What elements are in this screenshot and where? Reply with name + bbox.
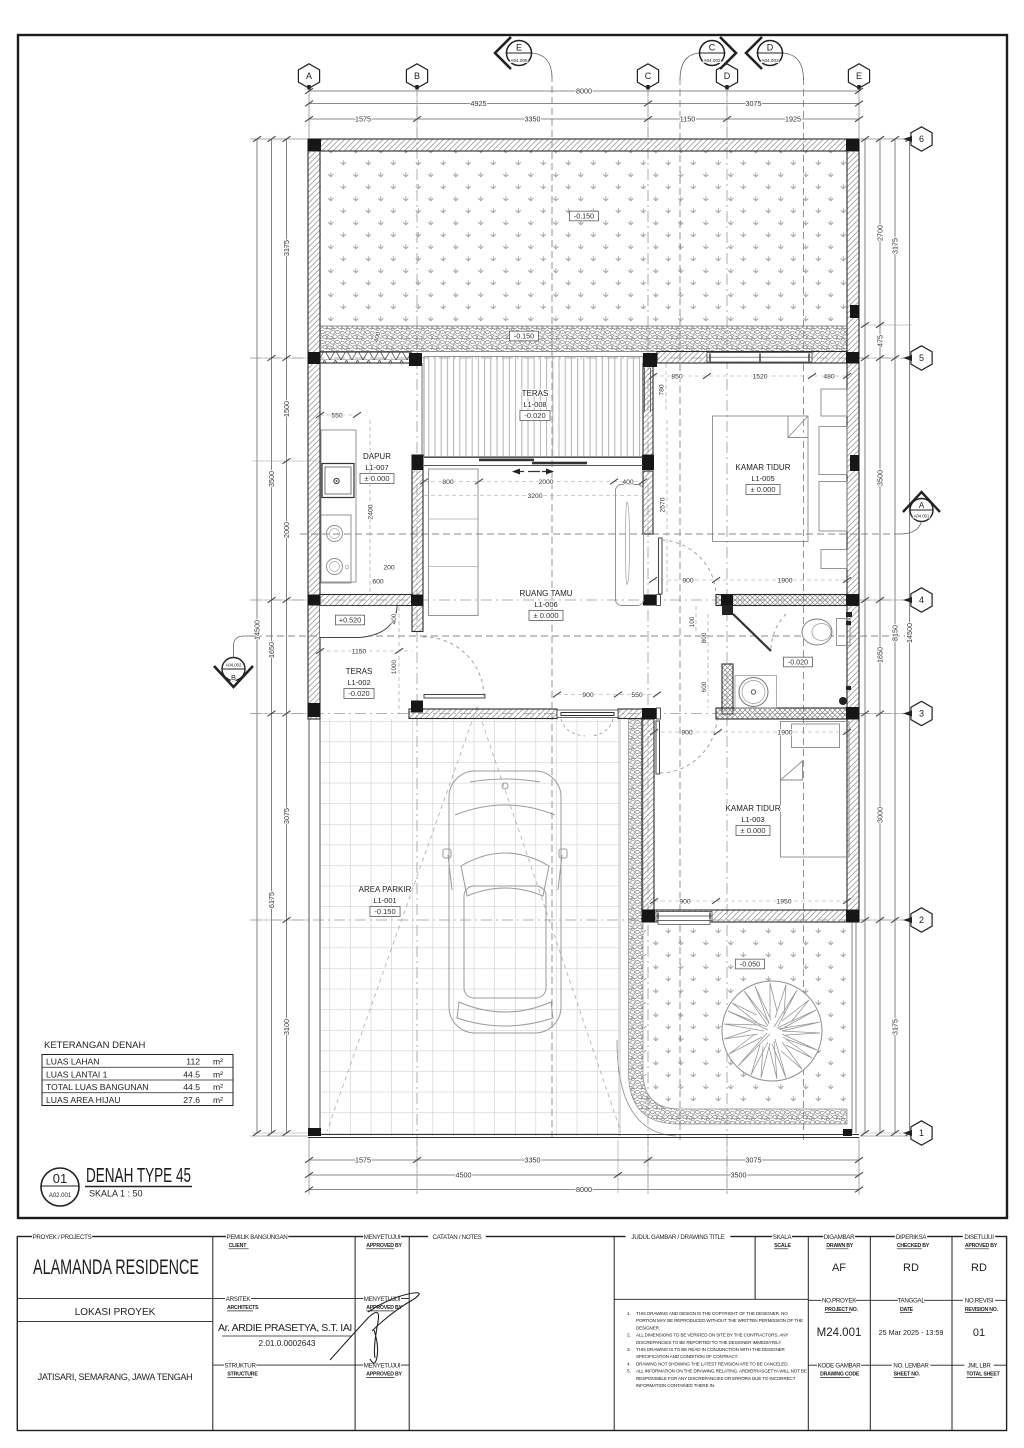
svg-text:SHEET NO.: SHEET NO. xyxy=(894,1372,921,1378)
svg-text:8000: 8000 xyxy=(576,1185,592,1194)
svg-text:480: 480 xyxy=(823,373,835,380)
svg-text:PORTION MAY BE REPRODUCED WITH: PORTION MAY BE REPRODUCED WITHOUT THE WR… xyxy=(636,1318,803,1323)
svg-text:DAPUR: DAPUR xyxy=(363,452,391,461)
svg-text:PEMILIK BANGUNGAN: PEMILIK BANGUNGAN xyxy=(227,1234,288,1241)
svg-text:1150: 1150 xyxy=(352,648,367,655)
svg-text:JUDUL GAMBAR / DRAWING TIT: JUDUL GAMBAR / DRAWING TITLE xyxy=(631,1234,724,1241)
svg-text:C: C xyxy=(645,71,652,81)
svg-text:-0.150: -0.150 xyxy=(574,212,594,221)
svg-text:CHECKED BY: CHECKED BY xyxy=(897,1243,930,1249)
svg-text:KETERANGAN DENAH: KETERANGAN DENAH xyxy=(44,1040,145,1051)
svg-text:SKALA 1 : 50: SKALA 1 : 50 xyxy=(89,1189,143,1199)
svg-text:± 0.000: ± 0.000 xyxy=(751,485,776,494)
svg-text:DENAH TYPE 45: DENAH TYPE 45 xyxy=(86,1165,191,1187)
svg-text:600: 600 xyxy=(701,681,708,692)
svg-text:L1-005: L1-005 xyxy=(751,474,774,483)
svg-text:3000: 3000 xyxy=(876,807,885,823)
svg-text:600: 600 xyxy=(372,578,384,585)
svg-text:PROYEK / PROJECTS: PROYEK / PROJECTS xyxy=(33,1234,92,1241)
svg-text:MENYETUJUI: MENYETUJUI xyxy=(364,1234,401,1241)
svg-text:100: 100 xyxy=(689,616,696,627)
svg-text:2400: 2400 xyxy=(367,504,374,519)
svg-text:A02.001: A02.001 xyxy=(49,1193,72,1199)
svg-text:14500: 14500 xyxy=(253,620,262,640)
svg-text:A04.001: A04.001 xyxy=(914,514,930,519)
svg-text:3075: 3075 xyxy=(282,808,291,824)
svg-text:DESIGNER.: DESIGNER. xyxy=(636,1325,660,1330)
svg-text:1: 1 xyxy=(919,1128,924,1138)
svg-text:3: 3 xyxy=(919,709,924,719)
svg-text:8000: 8000 xyxy=(576,87,592,96)
svg-text:ALAMANDA RESIDENCE: ALAMANDA RESIDENCE xyxy=(33,1256,199,1279)
svg-text:3500: 3500 xyxy=(731,1171,747,1180)
svg-text:4.: 4. xyxy=(627,1361,631,1367)
svg-text:3075: 3075 xyxy=(746,1156,762,1165)
svg-text:01: 01 xyxy=(53,1171,67,1186)
svg-text:TOTAL LUAS BANGUNAN: TOTAL LUAS BANGUNAN xyxy=(46,1082,149,1092)
svg-text:RESPONSIBLE FOR ANY DISCREPANC: RESPONSIBLE FOR ANY DISCREPANCIES OR ERR… xyxy=(636,1376,796,1381)
svg-text:STRUCTURE: STRUCTURE xyxy=(227,1372,258,1378)
svg-text:44.5: 44.5 xyxy=(183,1082,200,1092)
svg-text:LUAS LAHAN: LUAS LAHAN xyxy=(46,1057,100,1067)
svg-text:A: A xyxy=(919,501,925,510)
svg-text:RD: RD xyxy=(903,1262,919,1274)
svg-text:A: A xyxy=(306,71,312,81)
svg-text:TERAS: TERAS xyxy=(522,389,549,398)
svg-text:m²: m² xyxy=(213,1069,223,1079)
svg-text:D: D xyxy=(767,43,774,53)
svg-text:3350: 3350 xyxy=(525,1156,541,1165)
svg-text:200: 200 xyxy=(383,564,395,571)
svg-text:1000: 1000 xyxy=(391,659,398,674)
svg-text:TANGGAL: TANGGAL xyxy=(897,1298,925,1305)
svg-text:44.5: 44.5 xyxy=(183,1069,200,1079)
svg-text:± 0.000: ± 0.000 xyxy=(365,474,390,483)
svg-text:1150: 1150 xyxy=(680,115,695,124)
svg-text:B: B xyxy=(231,673,236,682)
svg-text:D: D xyxy=(724,71,731,81)
svg-text:1500: 1500 xyxy=(282,401,291,417)
svg-text:L1-008: L1-008 xyxy=(523,400,546,409)
svg-text:L1-003: L1-003 xyxy=(741,815,764,824)
svg-text:5.: 5. xyxy=(627,1369,631,1375)
svg-text:KODE GAMBAR: KODE GAMBAR xyxy=(818,1363,862,1370)
svg-text:DIGAMBAR: DIGAMBAR xyxy=(824,1234,855,1241)
svg-text:1950: 1950 xyxy=(776,898,791,905)
svg-text:1.: 1. xyxy=(627,1311,631,1317)
svg-text:400: 400 xyxy=(391,613,398,624)
svg-text:2: 2 xyxy=(919,915,924,925)
svg-text:2000: 2000 xyxy=(538,479,553,486)
svg-text:112: 112 xyxy=(186,1057,200,1067)
svg-text:TOTAL SHEET: TOTAL SHEET xyxy=(966,1372,1000,1378)
svg-text:KAMAR TIDUR: KAMAR TIDUR xyxy=(736,463,791,472)
svg-text:1900: 1900 xyxy=(777,729,792,736)
svg-text:AF: AF xyxy=(832,1262,846,1274)
svg-text:1925: 1925 xyxy=(785,115,801,124)
svg-text:L1-002: L1-002 xyxy=(347,678,370,687)
svg-text:E: E xyxy=(516,43,522,53)
svg-text:LUAS LANTAI 1: LUAS LANTAI 1 xyxy=(46,1069,108,1079)
svg-text:SPECIFICATION AND CONDITION OF: SPECIFICATION AND CONDITION OF CONTRACT. xyxy=(636,1354,738,1359)
svg-text:MENYETUJUI: MENYETUJUI xyxy=(364,1363,401,1370)
svg-text:DISCREPANCIES TO BE REPORTED T: DISCREPANCIES TO BE REPORTED TO THE DESI… xyxy=(636,1340,781,1345)
svg-text:-0.020: -0.020 xyxy=(348,689,369,698)
svg-text:B: B xyxy=(414,71,420,81)
svg-text:LOKASI PROYEK: LOKASI PROYEK xyxy=(75,1307,156,1318)
svg-text:ALL INFORMATION ON THE DRAWING: ALL INFORMATION ON THE DRAWING RELATING.… xyxy=(636,1369,807,1374)
svg-text:AREA PARKIR: AREA PARKIR xyxy=(359,885,412,894)
svg-text:1575: 1575 xyxy=(355,1156,371,1165)
svg-text:APPROVED BY: APPROVED BY xyxy=(366,1243,402,1249)
svg-text:1650: 1650 xyxy=(876,647,885,663)
svg-text:m²: m² xyxy=(213,1095,223,1105)
svg-text:ALL DIMENSIONS TO BE VERIFIED: ALL DIMENSIONS TO BE VERIFIED ON SITE BY… xyxy=(636,1333,788,1338)
svg-text:RD: RD xyxy=(971,1262,987,1274)
svg-text:3175: 3175 xyxy=(282,240,291,256)
svg-text:LUAS AREA HIJAU: LUAS AREA HIJAU xyxy=(46,1095,121,1105)
svg-text:8150: 8150 xyxy=(891,625,900,641)
svg-text:THIS DRAWING IS TO BE READ IN: THIS DRAWING IS TO BE READ IN CONJUNCTIO… xyxy=(636,1347,786,1352)
svg-text:TERAS: TERAS xyxy=(346,667,373,676)
svg-text:INFORMATION CONTAINED THERE IN: INFORMATION CONTAINED THERE IN. xyxy=(636,1383,715,1388)
svg-text:550: 550 xyxy=(331,412,343,419)
svg-text:4925: 4925 xyxy=(471,99,487,108)
svg-text:-0.150: -0.150 xyxy=(374,907,395,916)
svg-text:2.: 2. xyxy=(627,1333,631,1339)
svg-text:E: E xyxy=(856,71,862,81)
svg-text:DATE: DATE xyxy=(900,1307,914,1313)
svg-text:550: 550 xyxy=(631,692,643,699)
svg-text:900: 900 xyxy=(582,692,594,699)
svg-text:4500: 4500 xyxy=(456,1171,472,1180)
svg-text:900: 900 xyxy=(682,577,694,584)
svg-text:400: 400 xyxy=(622,479,634,486)
svg-text:780: 780 xyxy=(658,384,665,396)
svg-text:+0.520: +0.520 xyxy=(339,616,361,625)
svg-text:3200: 3200 xyxy=(527,493,542,500)
svg-text:4: 4 xyxy=(919,595,924,605)
svg-text:900: 900 xyxy=(679,898,691,905)
svg-text:CLIENT: CLIENT xyxy=(229,1243,248,1249)
svg-text:DRAWN BY: DRAWN BY xyxy=(826,1243,853,1249)
svg-text:2570: 2570 xyxy=(659,497,666,512)
svg-text:m²: m² xyxy=(213,1057,223,1067)
svg-text:3500: 3500 xyxy=(267,471,276,487)
svg-text:2.01.0.0002643: 2.01.0.0002643 xyxy=(259,1339,316,1348)
svg-text:RUANG TAMU: RUANG TAMU xyxy=(519,589,572,598)
svg-text:3500: 3500 xyxy=(876,470,885,486)
svg-text:A04.002: A04.002 xyxy=(703,58,721,63)
svg-text:6175: 6175 xyxy=(267,892,276,908)
svg-text:A04.002: A04.002 xyxy=(226,663,242,668)
svg-text:800: 800 xyxy=(701,632,708,643)
svg-text:DIPERIKSA: DIPERIKSA xyxy=(896,1234,927,1241)
svg-text:APROVED BY: APROVED BY xyxy=(965,1243,998,1249)
svg-text:APPROVED BY: APPROVED BY xyxy=(366,1372,402,1378)
svg-text:01: 01 xyxy=(973,1327,985,1339)
svg-text:27.6: 27.6 xyxy=(183,1095,200,1105)
svg-text:2700: 2700 xyxy=(876,225,885,241)
svg-text:3175: 3175 xyxy=(891,238,900,254)
svg-text:M24.001: M24.001 xyxy=(817,1327,862,1339)
svg-text:-0.020: -0.020 xyxy=(788,658,808,667)
svg-text:800: 800 xyxy=(442,479,454,486)
svg-text:3075: 3075 xyxy=(746,99,762,108)
svg-text:1520: 1520 xyxy=(752,373,767,380)
svg-text:5: 5 xyxy=(919,353,924,363)
svg-text:SKALA: SKALA xyxy=(773,1234,793,1241)
svg-text:14500: 14500 xyxy=(905,623,914,643)
svg-text:-0.050: -0.050 xyxy=(740,960,760,969)
svg-text:3175: 3175 xyxy=(891,1019,900,1035)
svg-text:ARSITEK: ARSITEK xyxy=(226,1296,252,1303)
svg-text:SCALE: SCALE xyxy=(774,1243,791,1249)
svg-text:NO.REVISI: NO.REVISI xyxy=(965,1298,994,1305)
svg-text:DRAWING NOT SHOWING THE LATEST: DRAWING NOT SHOWING THE LATEST REVISION … xyxy=(636,1361,789,1366)
svg-text:NO.PROYEK: NO.PROYEK xyxy=(822,1298,857,1305)
svg-text:900: 900 xyxy=(681,729,693,736)
svg-text:CATATAN / NOTES: CATATAN / NOTES xyxy=(432,1234,481,1241)
svg-text:-0.020: -0.020 xyxy=(524,411,545,420)
svg-text:Ar. ARDIE PRASETYA, S.T. I: Ar. ARDIE PRASETYA, S.T. IAI xyxy=(218,1322,352,1334)
svg-text:1900: 1900 xyxy=(777,577,792,584)
svg-text:1575: 1575 xyxy=(355,115,371,124)
svg-text:REVISION NO.: REVISION NO. xyxy=(965,1307,999,1313)
svg-text:L1-001: L1-001 xyxy=(373,896,396,905)
svg-text:C: C xyxy=(709,43,716,53)
svg-text:m²: m² xyxy=(213,1082,223,1092)
svg-text:JML LBR: JML LBR xyxy=(967,1363,991,1370)
svg-text:STRUKTUR: STRUKTUR xyxy=(224,1363,256,1370)
svg-text:MENYETUJUI: MENYETUJUI xyxy=(364,1296,401,1303)
svg-text:L1-006: L1-006 xyxy=(534,600,557,609)
svg-text:A04.005: A04.005 xyxy=(510,58,528,63)
svg-text:KAMAR TIDUR: KAMAR TIDUR xyxy=(726,804,781,813)
svg-text:475: 475 xyxy=(876,335,885,347)
svg-text:850: 850 xyxy=(671,373,683,380)
svg-text:1650: 1650 xyxy=(267,642,276,658)
svg-text:PROJECT NO.: PROJECT NO. xyxy=(825,1307,859,1313)
svg-text:DRAWING CODE: DRAWING CODE xyxy=(820,1372,860,1378)
svg-text:3100: 3100 xyxy=(282,1019,291,1035)
svg-text:-0.150: -0.150 xyxy=(514,332,534,341)
svg-text:ARCHITECTS: ARCHITECTS xyxy=(227,1305,259,1311)
svg-text:NO. LEMBAR: NO. LEMBAR xyxy=(893,1363,929,1370)
svg-text:6: 6 xyxy=(919,134,924,144)
svg-text:25 Mar 2025 - 13:59: 25 Mar 2025 - 13:59 xyxy=(879,1328,944,1337)
svg-text:± 0.000: ± 0.000 xyxy=(534,611,559,620)
svg-text:A04.003: A04.003 xyxy=(761,58,779,63)
svg-text:± 0.000: ± 0.000 xyxy=(741,826,766,835)
svg-text:3.: 3. xyxy=(627,1347,631,1353)
svg-text:L1-007: L1-007 xyxy=(365,463,388,472)
svg-text:JATISARI, SEMARANG, JAWA TENGA: JATISARI, SEMARANG, JAWA TENGAH xyxy=(38,1372,193,1382)
svg-text:THIS DRAWING AND DESIGN IS THE: THIS DRAWING AND DESIGN IS THE COPYRIGHT… xyxy=(636,1311,788,1316)
svg-text:DISETUJUI: DISETUJUI xyxy=(964,1234,994,1241)
svg-text:3350: 3350 xyxy=(525,115,541,124)
svg-text:2000: 2000 xyxy=(282,522,291,538)
